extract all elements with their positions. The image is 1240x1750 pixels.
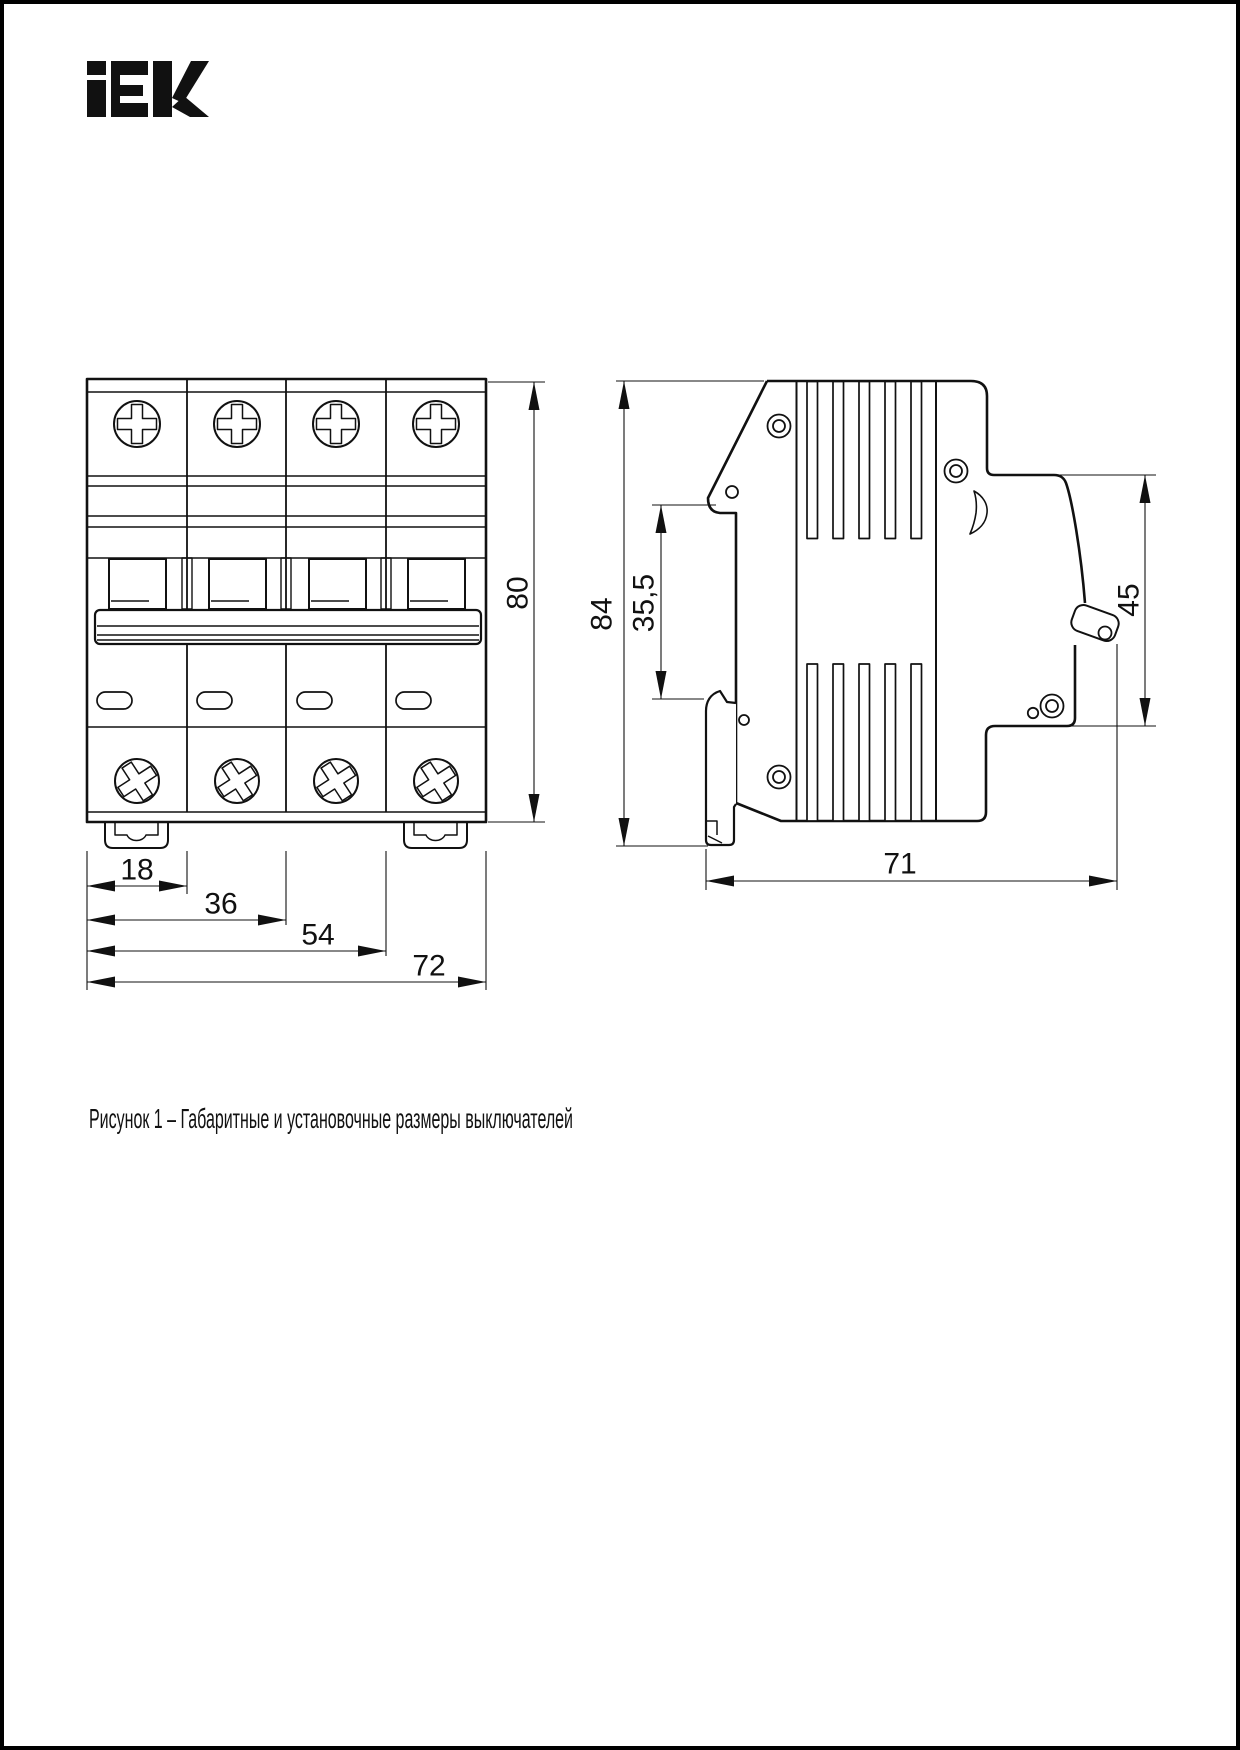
dim-label-72: 72 [412,950,445,983]
dim-label-45: 45 [1113,583,1146,616]
crescent-slot [970,491,987,534]
toggle-handles [109,558,465,609]
din-clip-side [706,691,736,845]
figure-caption: Рисунок 1 – Габаритные и установочные ра… [89,1103,573,1134]
module-dividers [187,379,386,812]
front-view-drawing [87,379,486,848]
dim-label-36: 36 [204,888,237,921]
dim-label-84: 84 [586,597,619,630]
vent-slots-upper [807,382,922,539]
side-view-drawing [706,381,1121,845]
dim-label-54: 54 [301,919,334,952]
marking-windows [97,692,431,709]
dim-label-35-5: 35,5 [628,574,661,632]
vent-slots-lower [807,664,922,821]
front-view-dimensions [87,382,545,990]
din-clips-front [105,822,467,848]
iek-logo [87,61,209,117]
dim-label-18: 18 [120,854,153,887]
dim-label-80: 80 [502,576,535,609]
document-page: 80 18 36 54 72 [0,0,1240,1750]
toggle-tie-bar [95,610,481,644]
drawing-canvas: 80 18 36 54 72 [4,4,1240,1750]
dim-label-71: 71 [883,848,916,881]
